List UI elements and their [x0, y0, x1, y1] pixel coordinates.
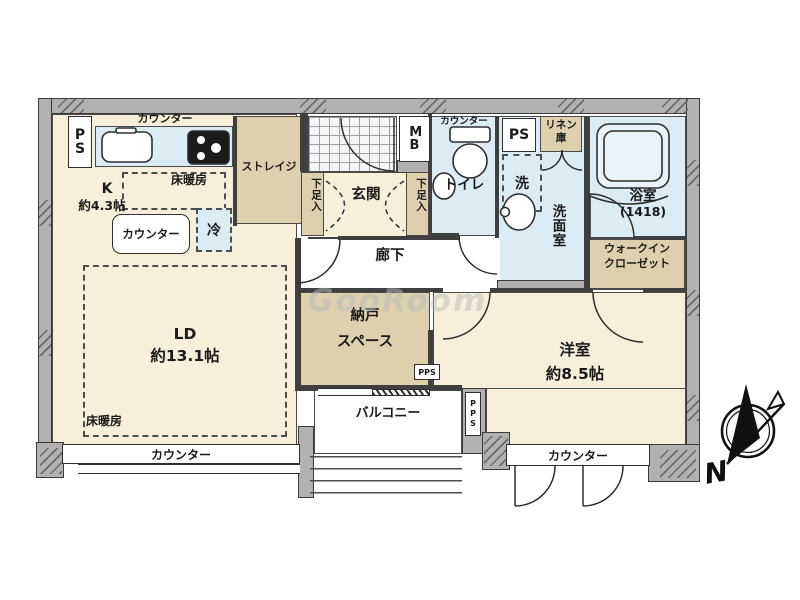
entrance-label: 玄関	[331, 187, 401, 204]
washer-label: 洗	[515, 173, 529, 193]
wall-hatch	[558, 99, 584, 113]
compass-north-label: N	[702, 454, 731, 491]
wall-bedroom-top-c	[643, 288, 686, 292]
ld-floor-heating-label: 床暖房	[86, 415, 144, 429]
wall-hatch	[420, 99, 446, 113]
compass-icon: N	[702, 384, 784, 491]
wall-washroom-bath	[584, 116, 589, 240]
floor-plan: 冷 洗 PS カウンター MB PS リネン 庫 カウンター カウンター PPS…	[0, 0, 800, 600]
kitchen-counter	[95, 126, 233, 167]
kitchen-name-label: K	[92, 181, 122, 197]
linen-closet: リネン 庫	[540, 116, 582, 152]
wall-genkan-step	[308, 237, 428, 239]
mb-label: MB	[409, 126, 419, 152]
room-bedroom-south	[486, 388, 686, 448]
wic-label-2: クローゼット	[590, 258, 684, 271]
bedroom-counter: カウンター	[506, 444, 650, 466]
ps-box-left: PS	[68, 116, 92, 168]
wall-hatch	[484, 436, 508, 466]
bedroom-counter-label: カウンター	[548, 447, 608, 464]
linen-label-2: 庫	[541, 132, 581, 145]
wall-hatch	[39, 330, 51, 356]
shoe-box-left-label: 下足入	[303, 178, 322, 213]
pps-label: PPS	[418, 368, 436, 377]
wall-toilet-washroom	[495, 116, 499, 238]
hallway-label: 廊下	[358, 248, 422, 265]
kitchen-size-label: 約4.3帖	[64, 199, 140, 213]
wall-left	[38, 98, 52, 448]
balcony-label: バルコニー	[330, 407, 446, 422]
ld-counter: カウンター	[62, 444, 300, 464]
bedroom-label: 洋室	[538, 342, 612, 360]
wall-ld-east	[295, 238, 301, 388]
ld-label: LD	[150, 326, 220, 344]
wall-hatch	[662, 99, 688, 113]
kitchen-island-counter: カウンター	[112, 214, 190, 254]
kitchen-floor-heating-label: 床暖房	[158, 174, 220, 188]
wic-label-1: ウォークイン	[590, 243, 684, 256]
wall-hatch	[687, 290, 699, 316]
room-bathroom	[589, 116, 686, 238]
wall-hatch	[687, 160, 699, 186]
room-balcony	[314, 390, 462, 454]
washroom-label: 洗面室	[549, 186, 565, 266]
pps-box-vertical: PPS	[465, 392, 481, 436]
watermark: GooRoom	[308, 283, 487, 319]
wall-hatch	[687, 395, 699, 421]
kitchen-counter-top-label: カウンター	[95, 113, 235, 126]
balcony-steps	[310, 456, 462, 494]
wall-hatch	[300, 99, 326, 113]
entry-porch-tiles	[308, 116, 397, 172]
storeroom-label-2: スペース	[310, 334, 420, 351]
balcony-sliding-door	[372, 389, 430, 396]
linen-label-1: リネン	[541, 119, 581, 132]
bathroom-size-label: (1418)	[604, 205, 682, 219]
balcony-sliding-window	[318, 388, 372, 396]
bedroom-size-label: 約8.5帖	[528, 366, 622, 384]
wall-hatch	[660, 450, 696, 478]
pps-box: PPS	[414, 364, 440, 380]
bedroom-terrace-door-arc-2	[583, 466, 623, 506]
bathroom-label: 浴室	[604, 189, 682, 205]
ld-counter-label: カウンター	[151, 446, 211, 463]
wall-bath-bottom	[634, 236, 686, 240]
room-toilet	[430, 116, 497, 236]
wall-hatch	[58, 99, 84, 113]
ps-left-label: PS	[74, 128, 85, 156]
shoe-box-right-label: 下足入	[408, 178, 427, 213]
wall-toilet-bottom	[428, 233, 459, 238]
ps-box-right: PS	[502, 118, 536, 152]
storage-label: ストレイジ	[234, 161, 304, 174]
wall-hatch	[39, 200, 51, 226]
ld-size-label: 約13.1帖	[130, 348, 240, 366]
ld-window	[78, 464, 300, 474]
pps-vertical-label: PPS	[469, 399, 478, 429]
fridge-label: 冷	[207, 220, 221, 240]
fridge-space: 冷	[196, 208, 232, 252]
bedroom-terrace-door-arc-1	[515, 466, 555, 506]
wall-hatch	[40, 448, 62, 474]
toilet-counter-label: カウンター	[432, 117, 496, 128]
toilet-label: トイレ	[432, 178, 496, 194]
washer-space: 洗	[502, 154, 542, 212]
mb-box: MB	[399, 116, 430, 162]
kitchen-island-label: カウンター	[122, 226, 180, 242]
ps-right-label: PS	[509, 127, 529, 143]
compass-needle	[727, 384, 760, 464]
wall-bedroom-top-b	[490, 288, 593, 292]
